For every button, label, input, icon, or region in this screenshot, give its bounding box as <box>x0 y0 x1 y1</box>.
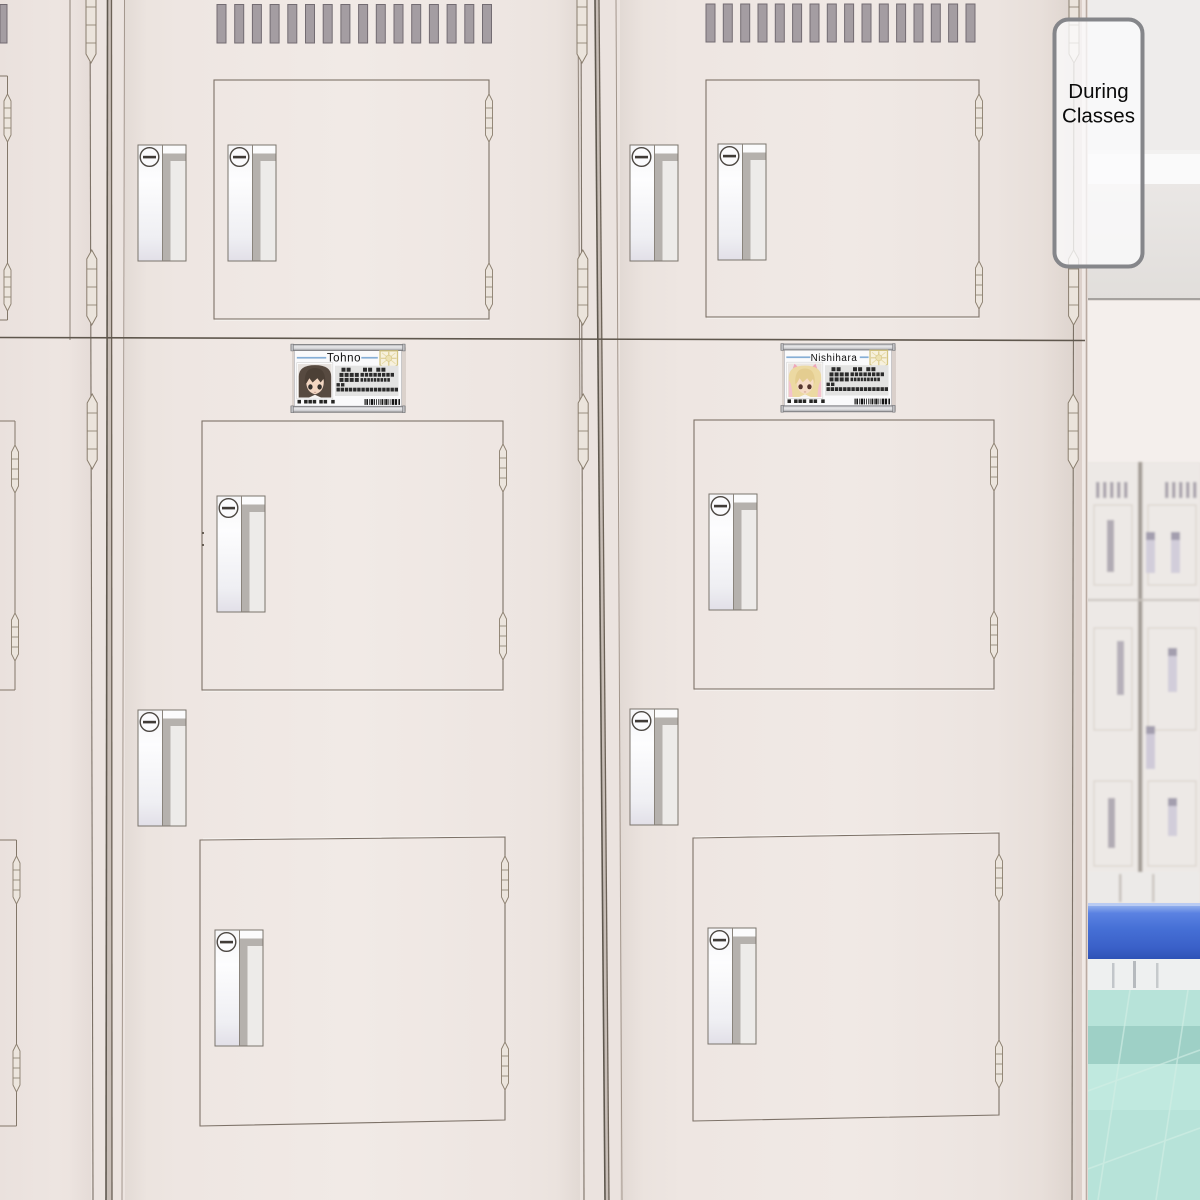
svg-text:During: During <box>1068 80 1128 103</box>
svg-text:Classes: Classes <box>1062 105 1135 128</box>
